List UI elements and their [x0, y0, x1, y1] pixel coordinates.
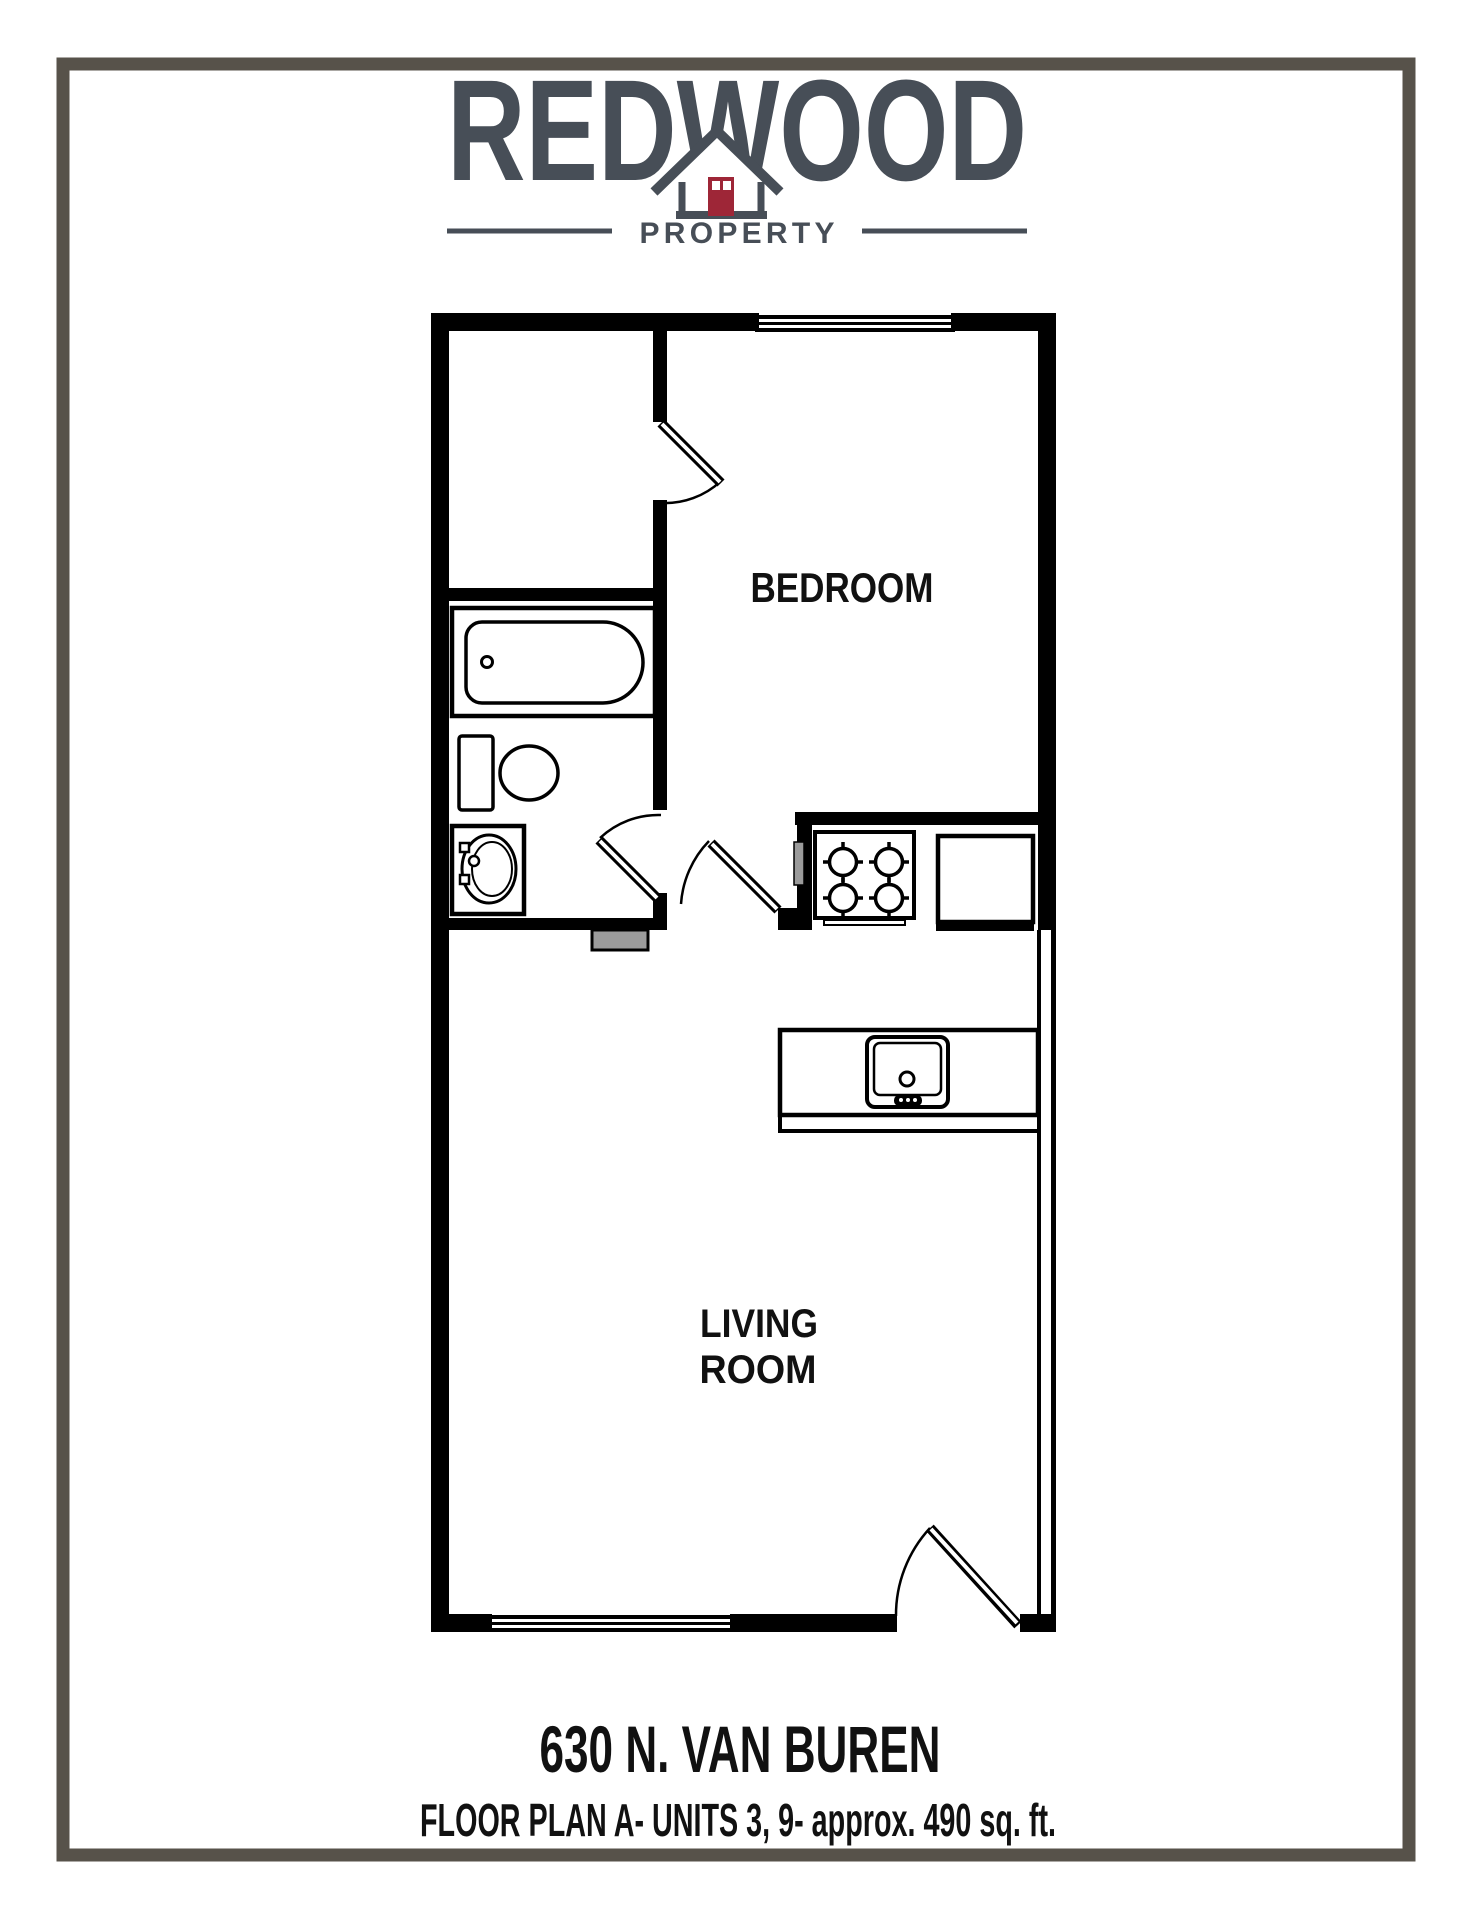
plan-details-caption: FLOOR PLAN A- UNITS 3, 9- approx. 490 sq…	[420, 1794, 1056, 1846]
logo: REDWOOD PROPERTY	[447, 50, 1027, 250]
stove-front-edge	[824, 920, 905, 925]
burner	[876, 885, 903, 912]
hall	[681, 815, 812, 930]
kitchen-sink	[867, 1037, 948, 1107]
wall-right-upper	[1038, 313, 1056, 930]
bathroom-east-wall	[653, 594, 667, 810]
burner	[830, 885, 857, 912]
wall-left	[431, 313, 449, 1632]
window-line	[755, 322, 955, 325]
door-leaf-core	[931, 1529, 1017, 1623]
floor-plan-drawing: REDWOOD PROPERTY	[0, 0, 1473, 1920]
wall-right-lower-outer	[1051, 930, 1056, 1614]
toilet	[459, 736, 558, 810]
kitchen	[780, 812, 1056, 1131]
window-line	[755, 328, 955, 332]
bedroom-window	[755, 310, 955, 334]
door-swing-arc	[661, 481, 721, 503]
outer-walls	[431, 313, 1056, 1632]
faucet-handle	[460, 875, 469, 884]
bedroom-label: BEDROOM	[751, 564, 934, 611]
house-door-window-right	[723, 181, 731, 190]
faucet-dot	[913, 1098, 917, 1102]
refrigerator	[936, 836, 1034, 931]
bathroom-south-wall	[431, 918, 667, 930]
threshold	[592, 930, 648, 950]
toilet-bowl	[500, 746, 558, 800]
bedroom-south-wall	[795, 812, 1056, 825]
window-cap	[488, 1614, 492, 1632]
closet-door	[661, 423, 721, 503]
door-leaf-core	[600, 841, 657, 898]
burner	[830, 849, 857, 876]
wall-end-cap	[794, 842, 804, 885]
bedroom-door-jamb	[778, 908, 812, 930]
bathroom	[431, 594, 667, 950]
address-caption: 630 N. VAN BUREN	[540, 1712, 941, 1786]
burner	[876, 849, 903, 876]
counter-lower-edge	[780, 1115, 1038, 1131]
door-leaf-core	[712, 844, 777, 909]
house-door-window-left	[712, 181, 720, 190]
door-leaf-core	[662, 424, 720, 482]
tub-drain	[482, 657, 493, 668]
door-jamb	[1020, 1614, 1056, 1632]
bedroom-door	[681, 841, 778, 910]
door-swing-arc	[600, 815, 661, 838]
door-swing-arc	[896, 1528, 930, 1616]
bathroom-door	[599, 815, 661, 899]
window-cap	[951, 313, 955, 332]
closet-partition-lower	[653, 500, 667, 594]
faucet-dot	[899, 1098, 903, 1102]
window-line	[488, 1628, 734, 1632]
faucet-handle	[460, 843, 469, 852]
living-room-label-line2: ROOM	[700, 1348, 817, 1392]
toilet-tank	[459, 736, 493, 810]
bathroom-sink	[452, 826, 524, 914]
window-line	[488, 1615, 734, 1619]
window-line	[755, 315, 955, 319]
sink-drain	[900, 1072, 914, 1086]
entry-door	[896, 1528, 1056, 1635]
wall-top	[431, 313, 1056, 331]
faucet-dot	[906, 1098, 910, 1102]
door-opening	[897, 1611, 1020, 1635]
window-line	[488, 1622, 734, 1625]
door-swing-arc	[681, 841, 709, 904]
closet	[431, 331, 721, 601]
living-room-label-line1: LIVING	[700, 1302, 818, 1346]
kitchen-counter	[780, 1030, 1038, 1131]
refrigerator-body	[938, 836, 1033, 922]
logo-tagline-text: PROPERTY	[640, 217, 835, 250]
window-cap	[755, 313, 759, 332]
closet-partition-upper	[653, 331, 667, 422]
stove	[815, 832, 914, 925]
counter-front-edge	[936, 924, 1034, 931]
closet-bottom-wall	[431, 588, 667, 601]
faucet-spout	[469, 856, 479, 866]
page-border	[63, 64, 1409, 1855]
floor-plan-page: REDWOOD PROPERTY	[0, 0, 1473, 1920]
window-cap	[730, 1614, 734, 1632]
living-room-window	[488, 1611, 734, 1635]
sink-basin-inner	[472, 842, 512, 896]
